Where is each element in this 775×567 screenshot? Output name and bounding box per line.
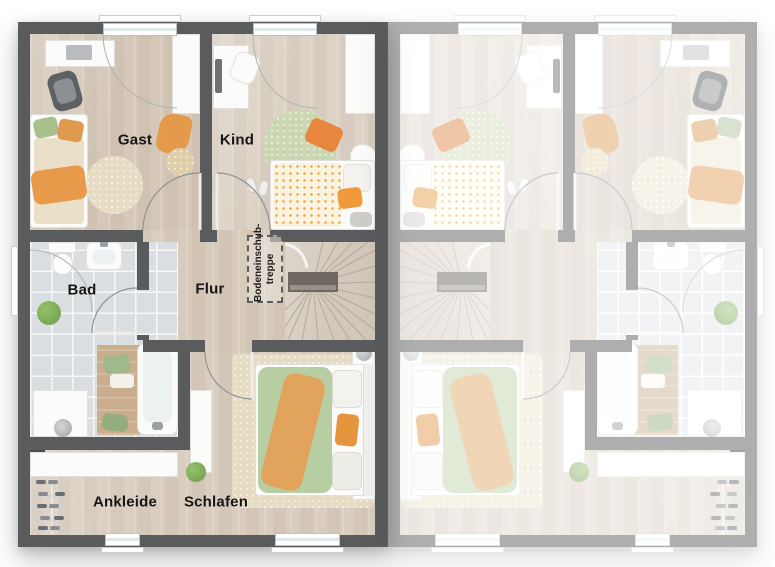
- window-schlafen: [435, 533, 500, 546]
- window-ankleide: [105, 533, 140, 546]
- pillow-schlafen: [413, 370, 443, 408]
- wall-bad: [137, 242, 149, 290]
- room-label-flur: Flur: [195, 281, 224, 298]
- plant-schlafen: [186, 462, 206, 482]
- wall-seg: [558, 230, 575, 242]
- wall-seg: [570, 340, 632, 352]
- window-sill: [101, 547, 144, 553]
- pillow-schlafen: [332, 452, 362, 490]
- room-label-kind: Kind: [220, 132, 254, 149]
- tub-faucet: [612, 422, 623, 430]
- sink-basin: [659, 249, 683, 265]
- wall-top: [387, 22, 757, 34]
- plan: Bodeneinschub-treppe Gast Kind Bad Flur …: [18, 22, 757, 547]
- plant-bad: [37, 301, 61, 325]
- window-sill: [431, 547, 504, 553]
- wall-left: [745, 22, 757, 547]
- pillow-kind-orange: [412, 186, 439, 209]
- towel-green: [101, 412, 129, 432]
- toilet-tank: [699, 242, 727, 253]
- towel-white: [110, 374, 134, 388]
- window-gast: [598, 23, 672, 36]
- towel-white: [641, 374, 665, 388]
- window-sill: [99, 15, 181, 22]
- wardrobe-kind: [400, 34, 430, 114]
- wall-seg: [200, 230, 217, 242]
- plant-schlafen: [569, 462, 589, 482]
- staircase: [400, 242, 490, 340]
- staircase: [285, 242, 375, 340]
- rug-round-gast: [632, 156, 690, 214]
- room-label-bad: Bad: [68, 282, 97, 299]
- wall-gast-kind: [200, 34, 212, 230]
- wall-gast-kind: [563, 34, 575, 230]
- window-ankleide: [635, 533, 670, 546]
- window-kind: [458, 23, 522, 36]
- bathtub-inner: [603, 349, 632, 423]
- pillow-kind-gray: [350, 212, 372, 227]
- wall-seg: [143, 340, 205, 352]
- wall-seg: [400, 230, 505, 242]
- window-sill: [249, 15, 321, 22]
- wardrobe-gast: [172, 34, 200, 114]
- toilet-tank: [48, 242, 76, 253]
- sink-basin: [92, 249, 116, 265]
- wall-bad: [626, 242, 638, 290]
- window-sill: [454, 15, 526, 22]
- rug-round-gast: [85, 156, 143, 214]
- shower-drain: [54, 419, 72, 437]
- headboard: [400, 364, 412, 496]
- wall-seg: [632, 230, 745, 242]
- room-label-gast: Gast: [118, 132, 152, 149]
- pouf: [166, 148, 194, 176]
- window-kind: [253, 23, 317, 36]
- window-sill: [631, 547, 674, 553]
- pillow-schlafen: [413, 452, 443, 490]
- pillow-schlafen: [332, 370, 362, 408]
- attic-hatch-box: Bodeneinschub-treppe: [247, 235, 283, 303]
- toilet-bowl: [702, 253, 723, 275]
- room-label-schlafen: Schlafen: [184, 494, 248, 511]
- closet-ankleide: [597, 452, 745, 477]
- wall-tub: [178, 352, 190, 450]
- wall-bad-ankleide: [585, 437, 745, 450]
- pillow-kind-gray: [403, 212, 425, 227]
- closet-ankleide: [30, 452, 178, 477]
- wall-party: [387, 22, 400, 547]
- wall-seg: [252, 340, 375, 352]
- window-sill: [594, 15, 676, 22]
- pouf: [581, 148, 609, 176]
- toilet-bowl: [52, 253, 73, 275]
- window-gast: [103, 23, 177, 36]
- wall-tub: [585, 352, 597, 450]
- cabinet-schlafen: [563, 390, 585, 473]
- monitor: [553, 59, 560, 93]
- pillow-kind-orange: [337, 186, 364, 209]
- wall-seg: [400, 340, 523, 352]
- laptop: [683, 45, 709, 60]
- pillow-schlafen-orange: [415, 413, 440, 447]
- towel-green: [103, 354, 131, 375]
- wall-seg: [270, 230, 375, 242]
- towel-green: [644, 354, 672, 375]
- duvet-kind: [273, 163, 341, 227]
- window-schlafen: [275, 533, 340, 546]
- room-label-ankleide: Ankleide: [93, 494, 157, 511]
- tub-faucet: [152, 422, 163, 430]
- bathtub-inner: [143, 349, 172, 423]
- window-sill: [271, 547, 344, 553]
- duvet-kind: [434, 163, 502, 227]
- wall-left: [18, 22, 30, 547]
- pillow-orange: [690, 118, 718, 143]
- floorplan-page: Bodeneinschub-treppe Gast Kind Bad Flur …: [0, 0, 775, 567]
- shower-drain: [703, 419, 721, 437]
- wall-top: [18, 22, 388, 34]
- cabinet-schlafen: [190, 390, 212, 473]
- pillow-schlafen-orange: [334, 413, 359, 447]
- window-sill: [757, 246, 764, 316]
- monitor: [215, 59, 222, 93]
- window-sill: [11, 246, 18, 316]
- pillow-orange: [56, 118, 84, 143]
- laptop: [66, 45, 92, 60]
- wall-seg: [30, 230, 143, 242]
- wardrobe-gast: [575, 34, 603, 114]
- unit-left: Bodeneinschub-treppe Gast Kind Bad Flur …: [18, 22, 388, 547]
- unit-right: [387, 22, 757, 547]
- wardrobe-kind: [345, 34, 375, 114]
- blanket-gast: [687, 164, 745, 205]
- plant-bad: [714, 301, 738, 325]
- attic-hatch-label: Bodeneinschub-treppe: [253, 236, 277, 302]
- headboard: [363, 364, 375, 496]
- wall-bad-ankleide: [30, 437, 190, 450]
